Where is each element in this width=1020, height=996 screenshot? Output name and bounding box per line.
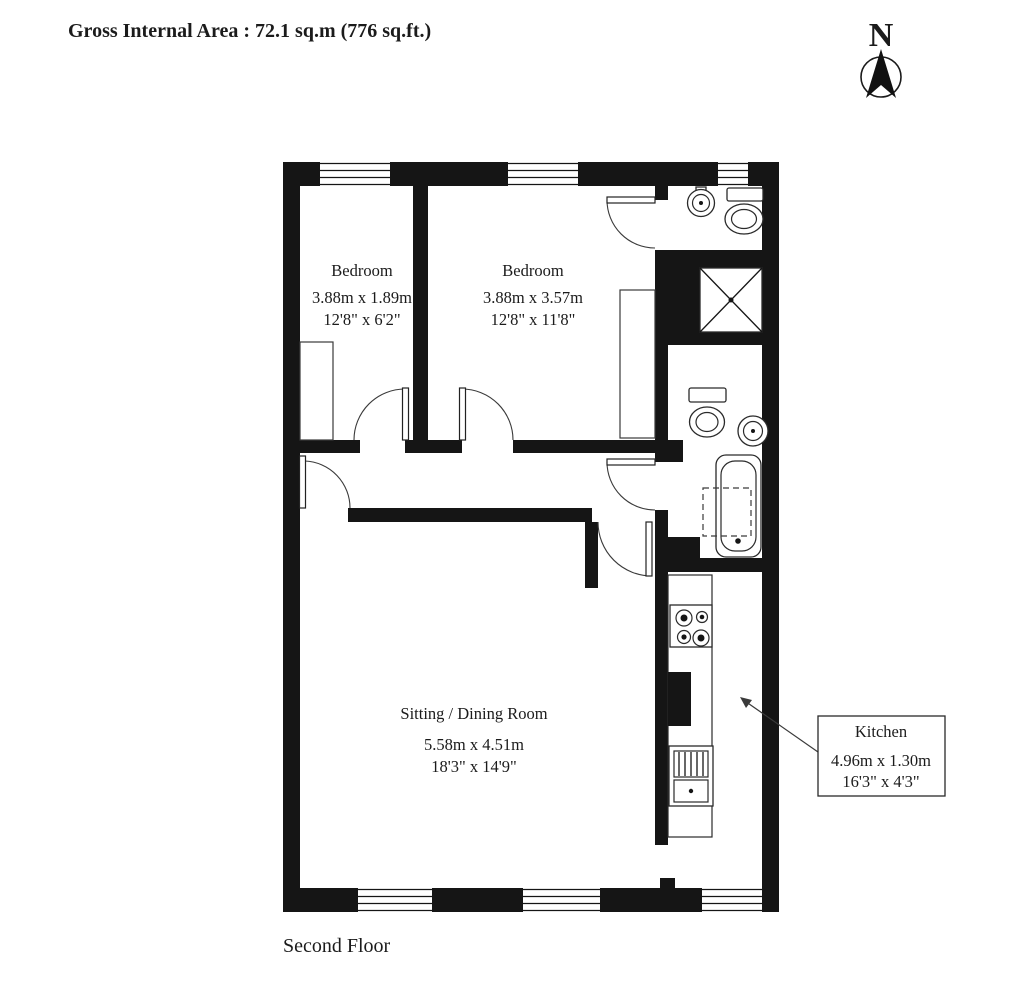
wc-basin-icon [688,187,715,217]
kitchen-dims-imperial: 16'3" x 4'3" [842,772,919,791]
bedroom1-dims-metric: 3.88m x 1.89m [312,288,412,307]
floor-label: Second Floor [283,935,391,957]
wall-bedrooms-south-2 [405,440,462,453]
bathtub-icon [703,455,761,557]
wall-right [762,162,779,912]
bedroom2-wardrobe [620,290,655,438]
compass-needle-icon [866,49,896,98]
wall-bedrooms-south-3 [513,440,655,453]
wall-left [283,162,300,912]
wall-kitchen-bottom-nub [660,878,675,888]
kitchen-dims-metric: 4.96m x 1.30m [831,751,931,770]
wall-bath-west-lower [655,510,668,537]
bathroom-basin-icon [738,416,768,446]
wall-kitchen-west [655,572,668,845]
wall-bedrooms-south-1 [300,440,360,453]
window-wc [718,162,748,186]
window-bedroom2 [508,162,578,186]
sitting-room-dims-imperial: 18'3" x 14'9" [431,757,516,776]
bathroom-toilet-icon [689,388,726,437]
kitchen-hob-icon [670,605,712,647]
sitting-room-door [598,522,652,576]
bedroom2-dims-metric: 3.88m x 3.57m [483,288,583,307]
window-sitting-left [358,888,432,912]
window-kitchen [702,888,762,912]
wall-bath-south [700,558,762,572]
kitchen-sink-icon [669,746,713,806]
sitting-room-name: Sitting / Dining Room [400,704,547,723]
compass-north-label: N [869,17,894,54]
kitchen-chimney-breast [668,672,691,726]
wall-cupboard-left [655,268,700,332]
wc-toilet-icon [725,188,763,234]
window-sitting-right [523,888,600,912]
wall-kitchen-corner [655,537,700,572]
north-compass-icon: N [861,17,901,98]
bedroom2-door [460,388,514,440]
hallway-left-door [300,456,351,508]
kitchen-leader-arrowhead-icon [740,697,752,708]
wall-bedroom-partition [413,186,428,440]
wall-sitting-stub [585,522,598,588]
bedroom1-door [354,388,409,440]
wall-bath-north [655,332,762,345]
wall-wc-south [655,250,762,268]
storage-cupboard-icon [700,268,762,332]
bedroom1-wardrobe [300,342,333,440]
kitchen-name: Kitchen [855,722,907,741]
bedroom1-name: Bedroom [331,261,393,280]
wall-bath-west-block [668,440,683,462]
bedroom2-dims-imperial: 12'8" x 11'8" [491,310,576,329]
ensuite-wc-door [607,197,655,248]
gross-internal-area-title: Gross Internal Area : 72.1 sq.m (776 sq.… [68,20,431,42]
wall-ensuite-west-top [655,186,668,200]
bathroom-door [607,459,655,510]
wall-hall-south [348,508,592,522]
floorplan-canvas: Gross Internal Area : 72.1 sq.m (776 sq.… [0,0,1020,996]
window-bedroom1 [320,162,390,186]
bedroom2-name: Bedroom [502,261,564,280]
kitchen-leader-line [742,699,818,752]
sitting-room-dims-metric: 5.58m x 4.51m [424,735,524,754]
bedroom1-dims-imperial: 12'8" x 6'2" [323,310,400,329]
